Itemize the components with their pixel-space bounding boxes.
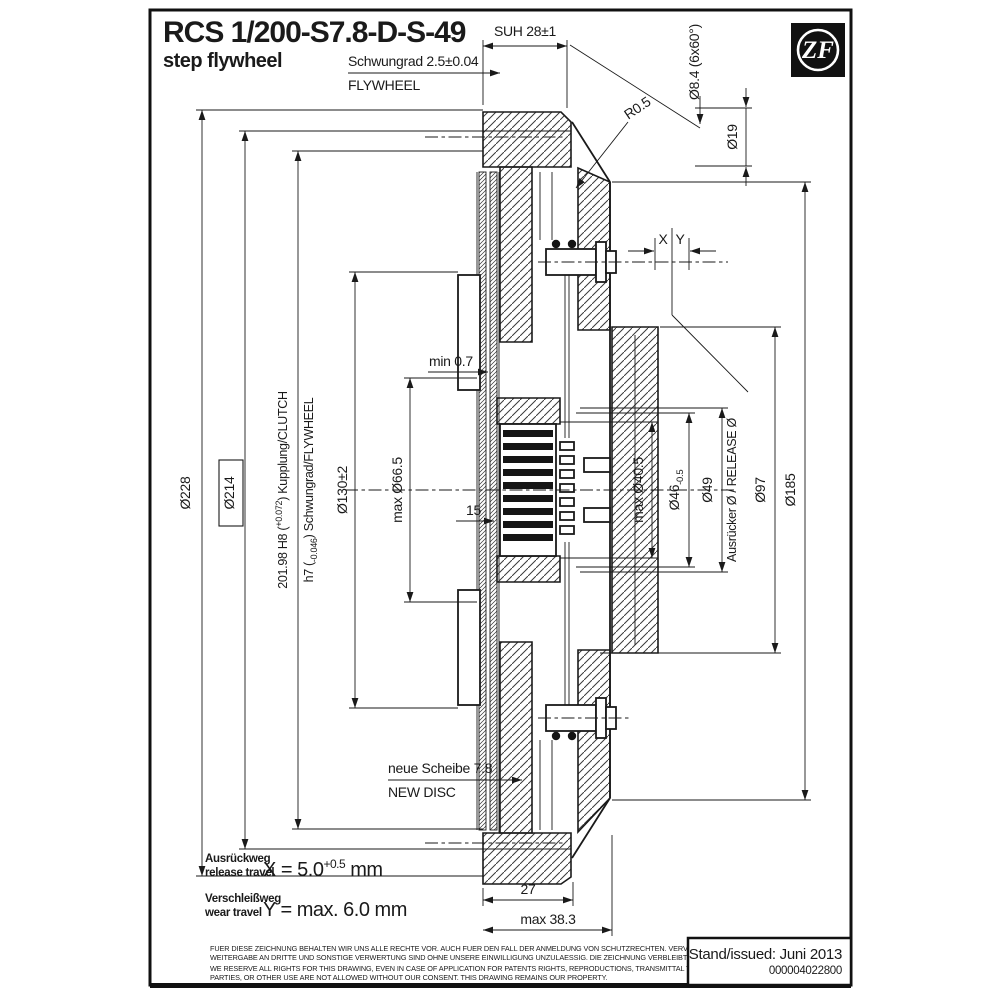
hub-flange-bottom [497, 556, 560, 582]
dim-d405: max Ø40.5 [630, 457, 646, 523]
dim-new-disc-de: neue Scheibe 7.8 [388, 760, 493, 776]
disclaimer-de-1: FUER DIESE ZEICHNUNG BEHALTEN WIR UNS AL… [210, 944, 745, 953]
dim-d185: Ø185 [782, 473, 798, 507]
dim-d97: Ø97 [752, 477, 768, 503]
issued-date: Stand/issued: Juni 2013 [689, 946, 842, 963]
drawing-subtitle: step flywheel [163, 50, 282, 72]
dim-flywheel-step-de: Schwungrad 2.5±0.04 [348, 53, 479, 69]
dim-x: X [658, 231, 668, 247]
drawing-title: RCS 1/200-S7.8-D-S-49 [163, 16, 466, 49]
dim-d19: Ø19 [724, 124, 740, 150]
disc-segment-bottom [458, 590, 480, 705]
footer: FUER DIESE ZEICHNUNG BEHALTEN WIR UNS AL… [210, 938, 851, 985]
dim-flywheel-step-en: FLYWHEEL [348, 77, 421, 93]
shaft-spline-profile [560, 442, 574, 534]
release-bearing-bottom [584, 508, 610, 522]
dim-d49: Ø49 [699, 477, 715, 503]
dim-d130: Ø130±2 [334, 466, 350, 514]
fit2-pre: h7 ( [302, 561, 316, 582]
zf-logo: ZF [791, 23, 845, 77]
fit2-tol: -0.046 [309, 538, 319, 562]
dim-d665: max Ø66.5 [389, 457, 405, 523]
pressure-plate-top [500, 167, 532, 342]
disclaimer-de-2: WEITERGABE AN DRITTE UND SONSTIGE VERWER… [210, 953, 756, 962]
zf-logo-letters: ZF [801, 37, 834, 64]
x-unit: mm [345, 859, 382, 881]
title-block: Stand/issued: Juni 2013 000004022800 [688, 938, 851, 985]
disclaimer-en-1: WE RESERVE ALL RIGHTS FOR THIS DRAWING, … [210, 964, 719, 973]
hub-spline-teeth [503, 430, 553, 541]
dim-release-label: Ausrücker Ø / RELEASE Ø [725, 418, 739, 562]
dim-383: max 38.3 [520, 911, 576, 927]
flywheel-rim-top [483, 112, 571, 167]
hub-flange-top [497, 398, 560, 424]
dim-y: Y [675, 231, 685, 247]
document-number: 000004022800 [769, 965, 842, 977]
fit1-post: ) Kupplung/CLUTCH [276, 391, 290, 501]
drawing-sheet: RCS 1/200-S7.8-D-S-49 step flywheel ZF [0, 0, 1000, 1000]
pressure-plate-bottom [500, 642, 532, 833]
dim-min07: min 0.7 [429, 353, 473, 369]
x-tolerance: +0.5 [323, 857, 346, 871]
x-value: X = 5.0 [263, 859, 324, 881]
disc-segment-top [458, 275, 480, 390]
disclaimer-en-2: PARTIES, OR OTHER USE ARE NOT ALLOWED WI… [210, 973, 607, 982]
dim-bolt-circle: Ø8.4 (6x60°) [686, 24, 702, 100]
dim-new-disc-en: NEW DISC [388, 784, 456, 800]
dim-15: 15 [466, 502, 481, 518]
fit1-tol: +0.072 [274, 500, 284, 526]
fit1-pre: 201.98 H8 ( [276, 526, 290, 589]
dim-fit-clutch: 201.98 H8 (+0.072) Kupplung/CLUTCH [274, 391, 290, 589]
release-travel-value: X = 5.0+0.5 mm [263, 857, 383, 881]
d46-tol: -0.5 [675, 470, 686, 485]
dim-d214: Ø214 [221, 476, 237, 510]
wear-travel-en: wear travel [204, 907, 262, 919]
flywheel-rim-bottom [483, 833, 571, 884]
dim-27: 27 [521, 881, 536, 897]
wear-travel-value: Y = max. 6.0 mm [263, 899, 407, 921]
disc-lining-1 [479, 172, 486, 830]
release-travel-de: Ausrückweg [205, 853, 271, 865]
disc-lining-2 [490, 172, 497, 830]
dim-d228: Ø228 [177, 476, 193, 510]
d46-pre: Ø46 [666, 484, 682, 510]
release-bearing-top [584, 458, 610, 472]
fit2-post: ) Schwungrad/FLYWHEEL [302, 397, 316, 538]
dim-suh: SUH 28±1 [494, 23, 557, 39]
technical-drawing: RCS 1/200-S7.8-D-S-49 step flywheel ZF [0, 0, 1000, 1000]
